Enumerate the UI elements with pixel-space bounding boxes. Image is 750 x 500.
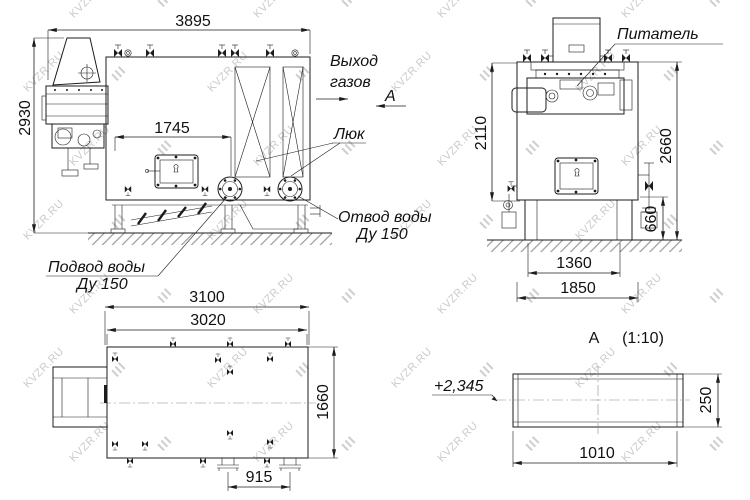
water-inlet-line1: Подвод воды [48,259,145,276]
water-inlet-flange [218,177,242,201]
detail-title: А (1:10) [589,330,664,347]
dim-250: 250 [698,387,715,414]
water-inlet-line2: Ду 150 [75,276,128,293]
gas-outlet-callout: Выход газов [316,53,378,99]
dim-2660: 2660 [658,128,675,164]
front-boiler-body [106,57,310,200]
section-a-letter: А [384,88,396,105]
detail-title-letter: А [589,330,600,347]
dim-2930: 2930 [17,100,34,136]
side-hopper [548,18,605,62]
plan-dim-flanges: 915 [228,469,290,491]
elevation-mark: +2,345 [432,378,497,401]
side-left-pipe [502,182,517,228]
hatch-callout: Люк [256,126,366,176]
front-hopper [53,38,100,85]
dim-1850: 1850 [560,280,596,297]
plan-dim-depth: 1660 [308,347,338,458]
dim-1660: 1660 [315,384,332,420]
detail-dim-width: 1010 [513,431,677,467]
side-dim-upper: 2110 [473,63,520,201]
front-dim-width: 3895 [48,13,310,80]
water-outlet-flange [278,177,302,201]
section-a-marker: А [376,88,406,106]
feeder-label: Питатель [617,26,699,43]
dim-660: 660 [643,206,660,233]
detail-view: А (1:10) +2,345 2 [432,330,722,467]
hatch-label: Люк [333,126,366,143]
front-top-valves [114,45,298,57]
front-stoker-machinery [42,86,108,176]
side-feeder-machinery [512,62,632,114]
drawing-sheet: KVZR.RUKVZR.RUKVZR.RUKVZR.RUKVZR.RUKVZR.… [0,0,750,500]
dim-1010: 1010 [579,445,615,462]
gas-outlet-label-line2: газов [330,74,371,91]
front-dim-height: 2930 [17,38,90,233]
front-view: 3895 2930 1745 Выход газов [17,13,432,293]
water-outlet-line1: Отвод воды [338,209,432,226]
dim-3100: 3100 [189,289,225,306]
side-ground [487,240,682,252]
detail-title-scale: (1:10) [622,330,664,347]
side-dim-foundation: 1850 [517,280,638,302]
gas-outlet-label-line1: Выход [330,53,378,70]
feeder-callout: Питатель [577,26,723,86]
dim-1360: 1360 [556,255,592,272]
elevation-value: +2,345 [434,378,483,395]
plan-feeder-box [53,367,108,427]
dim-2110: 2110 [473,116,490,151]
front-gas-hatches [235,67,303,177]
detail-duct [495,366,690,436]
drawing-svg: 3895 2930 1745 Выход газов [0,0,750,500]
front-dim-firebox: 1745 [115,120,231,176]
side-dim-base: 660 [640,197,668,240]
side-view: Питатель 2110 2660 660 [473,18,723,302]
side-base [525,200,632,240]
plan-valves [112,338,291,467]
water-outlet-line2: Ду 150 [355,226,408,243]
plan-view: 3100 3020 1660 915 [53,289,338,491]
dim-3895: 3895 [175,13,211,30]
front-firebox-door [145,155,198,188]
dim-915: 915 [246,469,273,486]
plan-body [107,347,308,458]
side-door [555,158,598,194]
front-grate-ladder [131,203,212,226]
dim-3020: 3020 [190,312,226,329]
front-ground [88,233,332,245]
plan-dim-body: 3020 [107,312,307,345]
dim-1745: 1745 [154,120,190,137]
detail-dim-height: 250 [683,374,722,427]
